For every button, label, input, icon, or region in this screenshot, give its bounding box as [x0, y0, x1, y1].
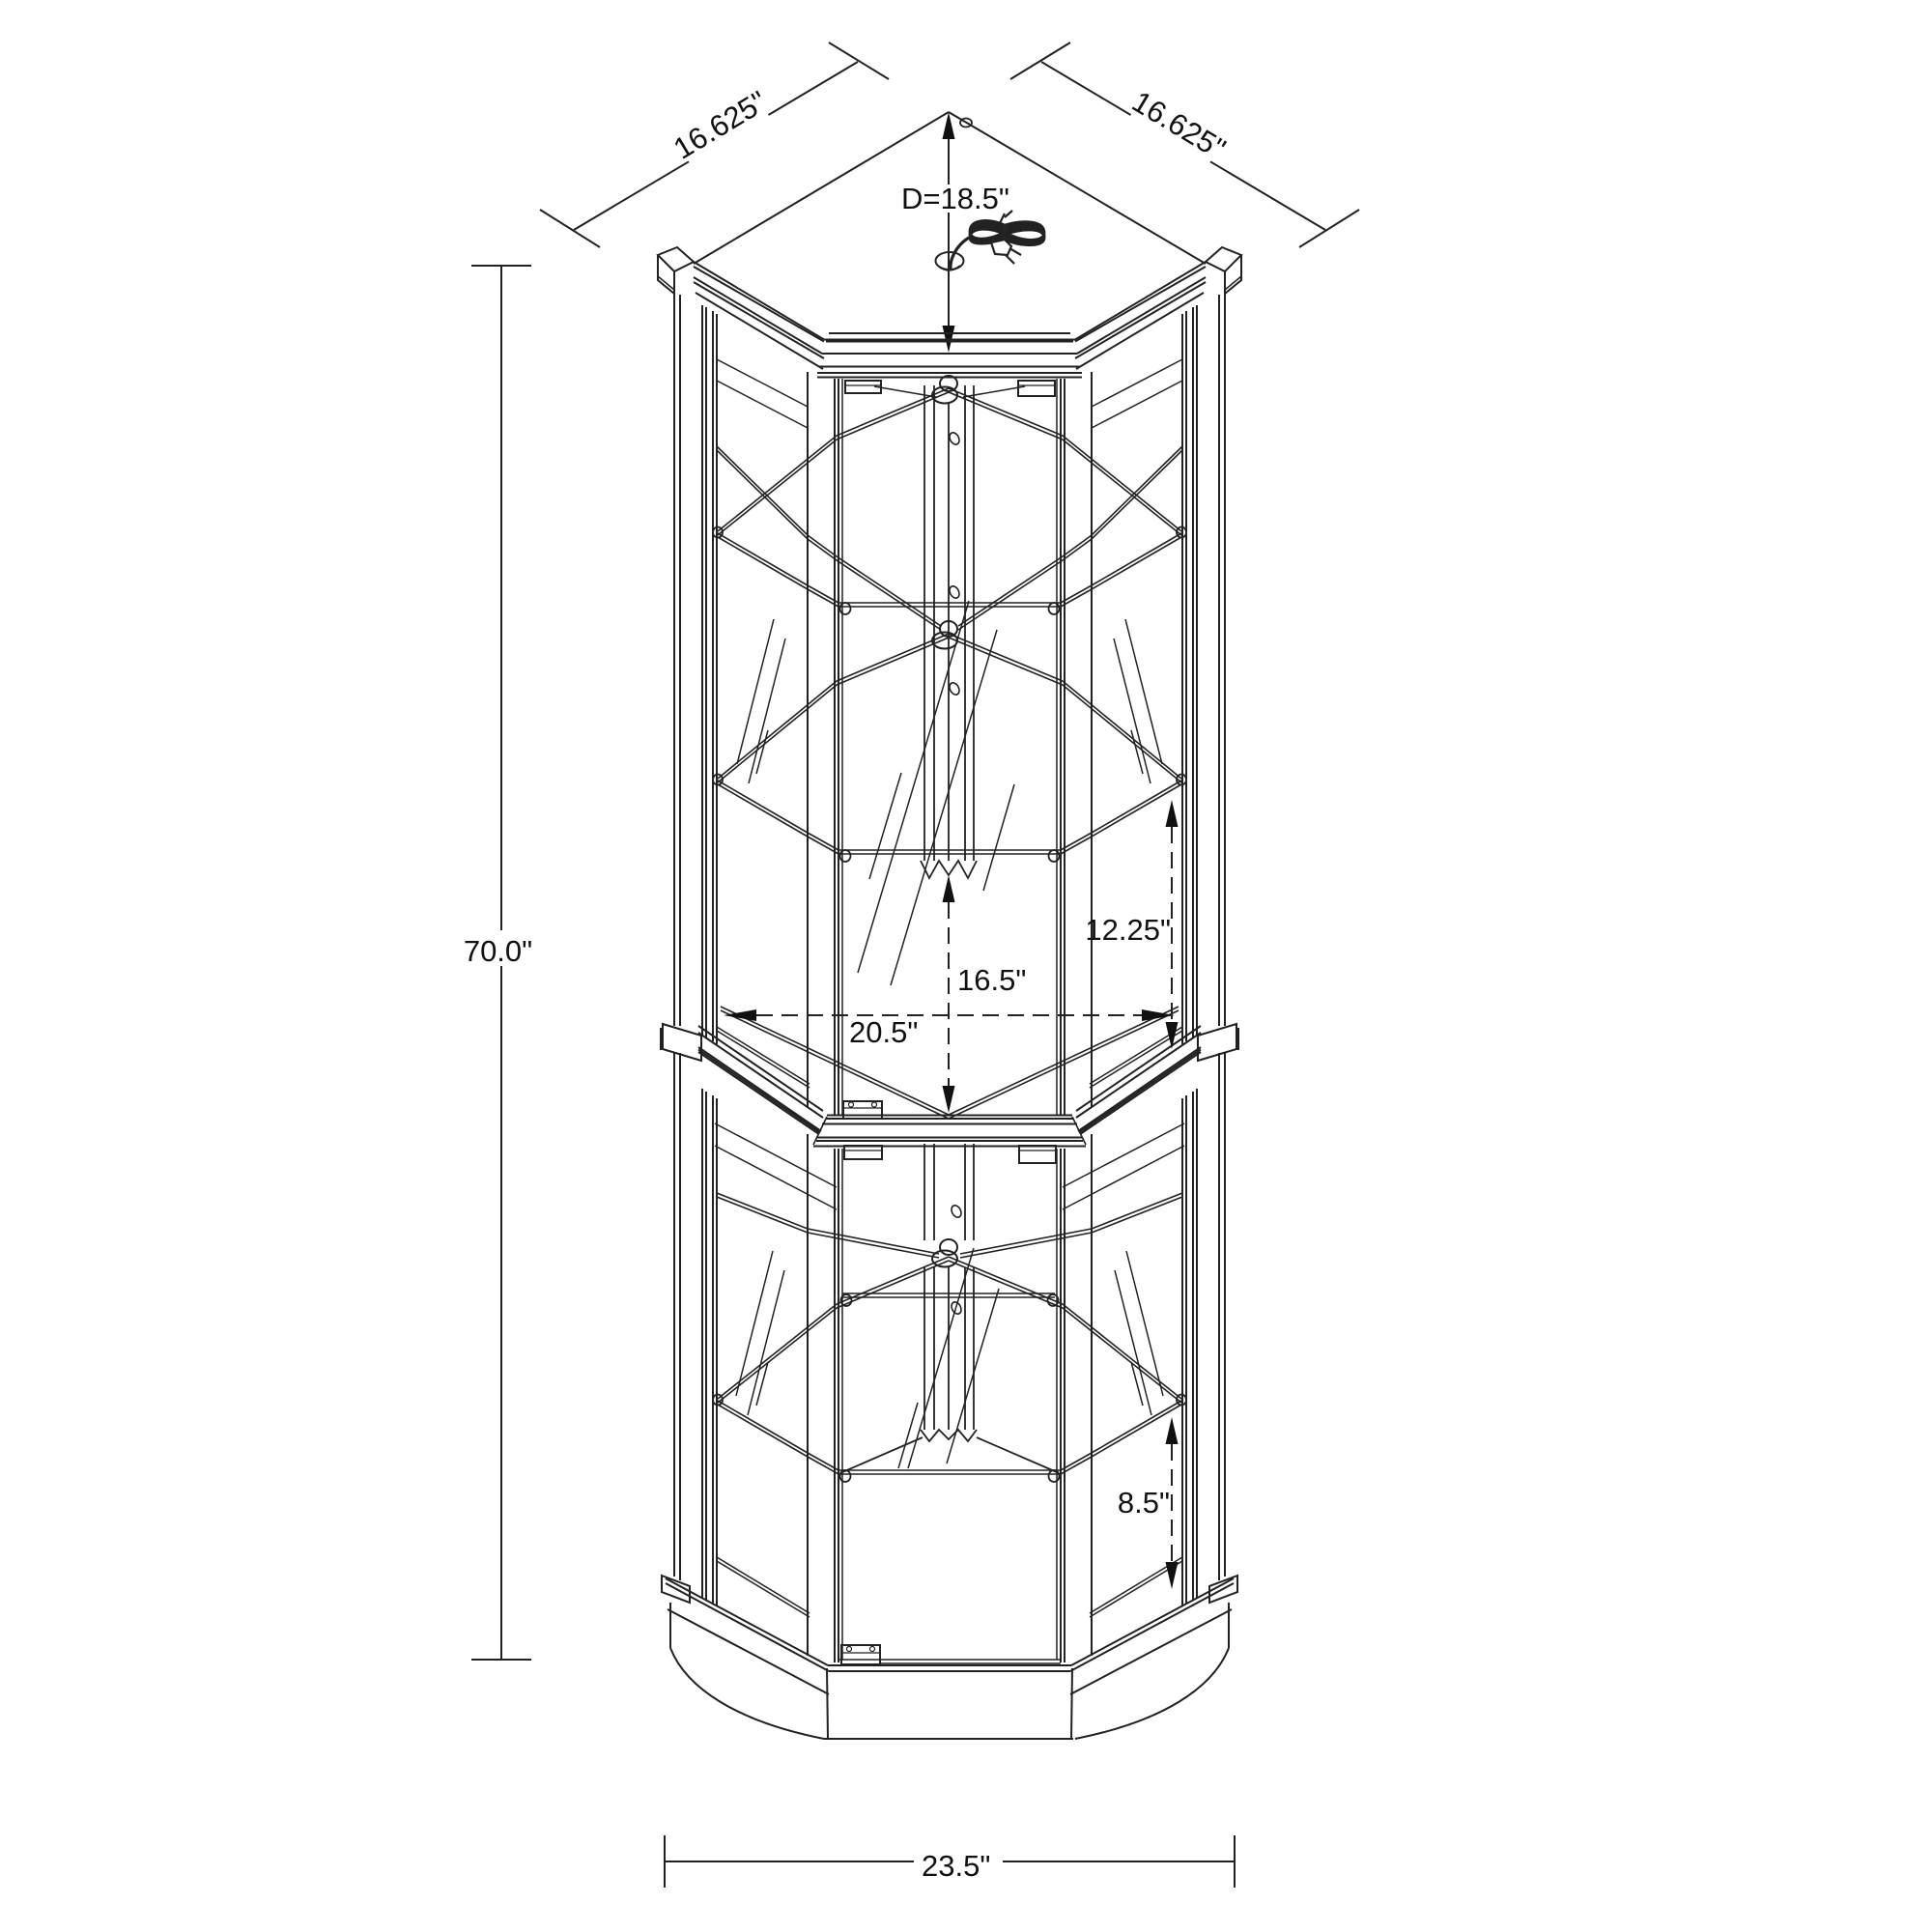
- svg-text:16.5": 16.5": [957, 963, 1026, 997]
- svg-text:70.0": 70.0": [464, 934, 532, 968]
- svg-text:20.5": 20.5": [849, 1015, 918, 1049]
- svg-text:D=18.5": D=18.5": [901, 182, 1009, 215]
- svg-text:23.5": 23.5": [922, 1849, 990, 1883]
- svg-text:12.25": 12.25": [1085, 913, 1171, 947]
- svg-text:8.5": 8.5": [1118, 1486, 1170, 1520]
